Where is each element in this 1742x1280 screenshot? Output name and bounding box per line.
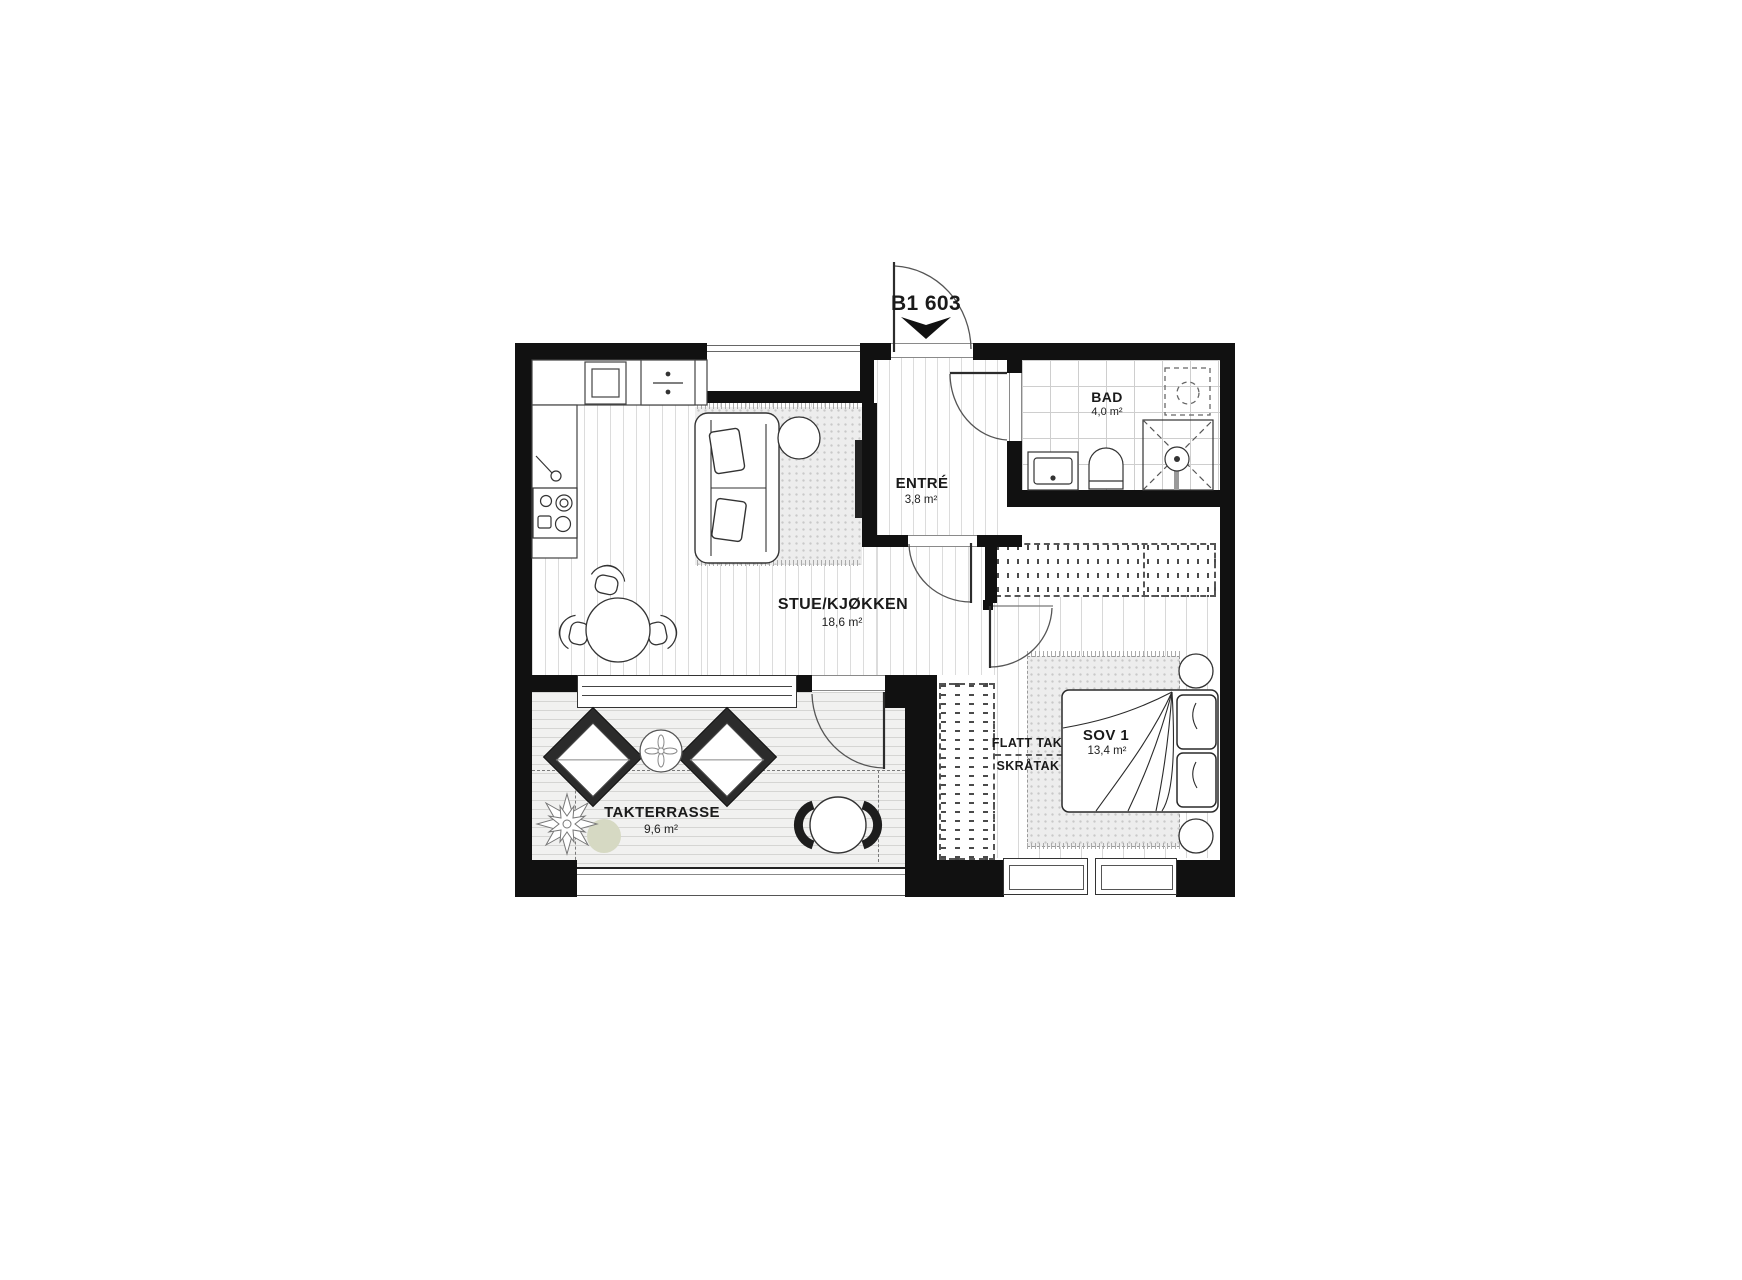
room-label-entre: ENTRÉ bbox=[896, 476, 949, 491]
terrace-door-arc bbox=[812, 694, 884, 768]
entry-arrow-icon bbox=[901, 317, 951, 339]
dining-chair bbox=[588, 563, 627, 598]
bathroom-vanity bbox=[1028, 452, 1078, 490]
sofa bbox=[695, 413, 779, 563]
toilet bbox=[1089, 448, 1123, 489]
side-table bbox=[778, 417, 820, 459]
terrace-table bbox=[810, 797, 866, 853]
nightstand bbox=[1179, 654, 1213, 688]
lounge-chair bbox=[678, 708, 777, 807]
lounge-chair bbox=[544, 708, 643, 807]
terrace-side-table bbox=[640, 730, 682, 772]
hall-door-arc bbox=[909, 544, 971, 602]
bed bbox=[1062, 690, 1218, 812]
roof-label-sloped: SKRÅTAK bbox=[997, 760, 1060, 773]
nightstand bbox=[1179, 819, 1213, 853]
water-heater bbox=[1165, 368, 1210, 415]
dining-table-set bbox=[557, 563, 680, 662]
shower bbox=[1143, 420, 1213, 490]
room-area-sov1: 13,4 m² bbox=[1088, 746, 1127, 758]
room-area-bad: 4,0 m² bbox=[1091, 407, 1122, 418]
bedroom-door-arc bbox=[991, 608, 1052, 667]
room-label-terrasse: TAKTERRASSE bbox=[604, 805, 720, 820]
roof-label-flat: FLATT TAK bbox=[992, 737, 1062, 750]
bathroom-door-arc bbox=[950, 374, 1007, 440]
sofa-pillow bbox=[711, 498, 746, 542]
plant bbox=[537, 794, 621, 854]
floor-plan: B1 603 BAD 4,0 m² ENTRÉ 3,8 m² STUE/KJØK… bbox=[0, 0, 1742, 1280]
unit-label: B1 603 bbox=[891, 293, 961, 314]
terrace-dining-set bbox=[798, 797, 877, 853]
room-area-entre: 3,8 m² bbox=[905, 495, 938, 507]
room-area-terrasse: 9,6 m² bbox=[644, 823, 678, 835]
sofa-pillow bbox=[709, 428, 745, 474]
tv bbox=[855, 440, 862, 518]
room-label-stue: STUE/KJØKKEN bbox=[778, 597, 908, 613]
room-label-bad: BAD bbox=[1091, 390, 1123, 404]
dining-table bbox=[586, 598, 650, 662]
room-label-sov1: SOV 1 bbox=[1083, 728, 1129, 743]
plan-lineart bbox=[0, 0, 1742, 1280]
room-area-stue: 18,6 m² bbox=[822, 616, 863, 628]
